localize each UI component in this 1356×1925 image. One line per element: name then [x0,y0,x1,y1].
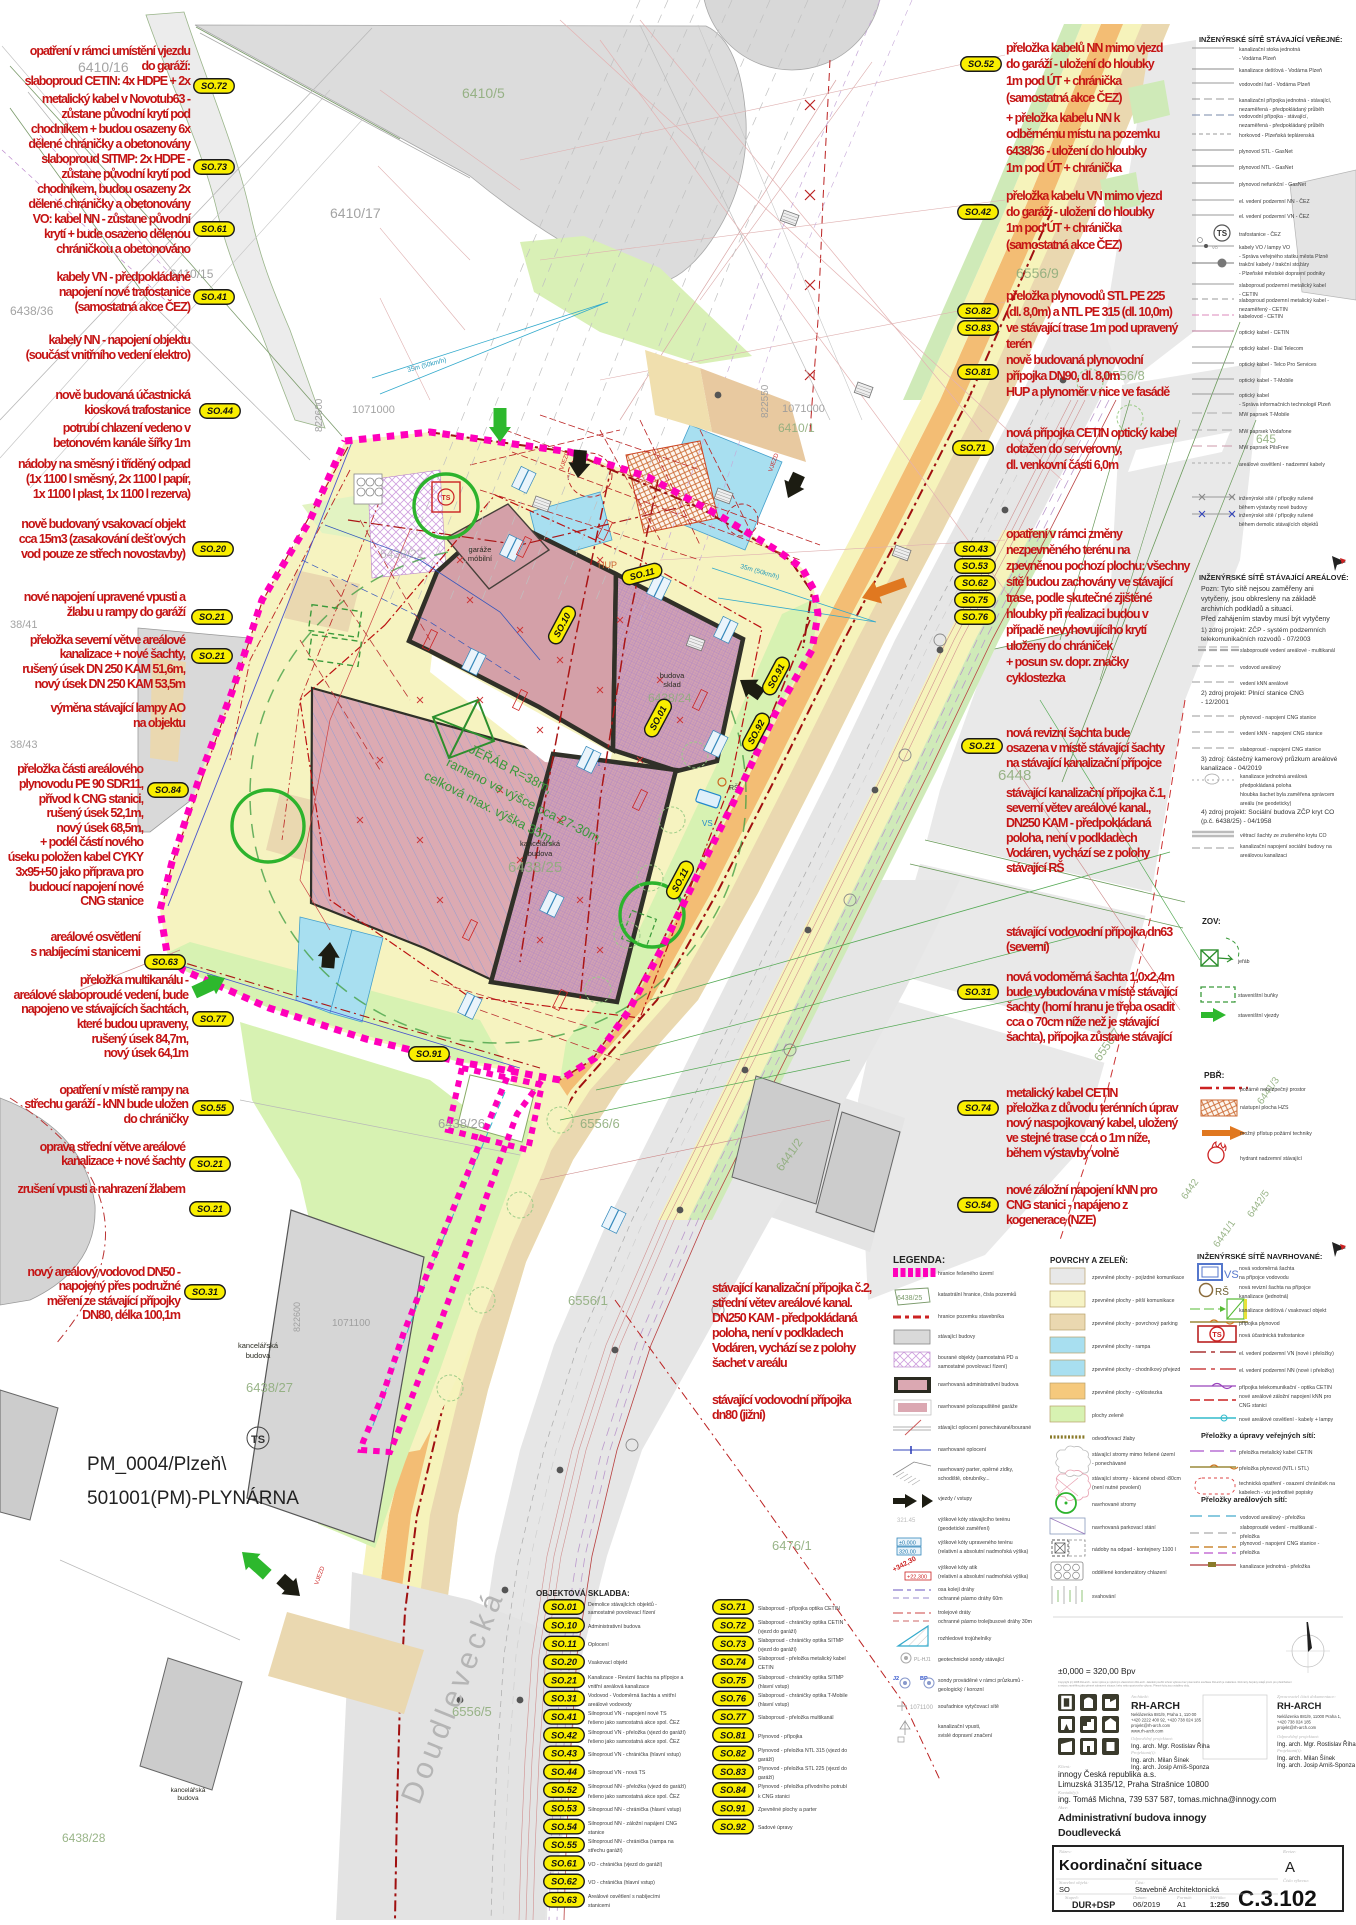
svg-text:na objektu: na objektu [133,716,185,730]
svg-text:stávající budovy: stávající budovy [938,1334,976,1340]
svg-text:ve stávající trase 1m pod upra: ve stávající trase 1m pod upravený [1006,321,1178,335]
svg-text:el. vedení podzemní NN - ČEZ: el. vedení podzemní NN - ČEZ [1239,198,1310,205]
svg-text:kancelářská: kancelářská [238,1341,279,1350]
svg-text:rušený úsek DN 250 KAM 51,6m,: rušený úsek DN 250 KAM 51,6m, [22,662,185,676]
svg-text:Copyright (c) 2008 RH-arch - t: Copyright (c) 2008 RH-arch - tento výkre… [1058,1680,1292,1684]
svg-text:uloženy do chrániček: uloženy do chrániček [1006,639,1113,653]
svg-text:Administrativní budova: Administrativní budova [588,1624,641,1630]
svg-text:Vodáren, vychází se z polohy: Vodáren, vychází se z polohy [712,1341,856,1355]
svg-text:LEGENDA:: LEGENDA: [893,1255,945,1266]
svg-text:odběrnému místu na pozemku: odběrnému místu na pozemku [1006,127,1160,141]
svg-text:MW paprsek Vodafone: MW paprsek Vodafone [1239,429,1292,435]
svg-text:metalický kabel v Novotub63 -: metalický kabel v Novotub63 - [42,92,191,106]
svg-text:1m pod ÚT + chránička: 1m pod ÚT + chránička [1006,73,1123,88]
svg-text:navrhované oplocení: navrhované oplocení [938,1447,987,1453]
svg-text:nový úsek 68,5m,: nový úsek 68,5m, [56,821,143,835]
svg-text:(vjezd do garáží): (vjezd do garáží) [758,1629,797,1635]
svg-text:Doudlevecká: Doudlevecká [1058,1827,1121,1839]
svg-text:technická opatření - osazení c: technická opatření - osazení chrániček n… [1239,1481,1335,1487]
svg-text:SO.74: SO.74 [965,1103,991,1113]
svg-text:Zpevněné plochy a parter: Zpevněné plochy a parter [758,1807,817,1813]
svg-text:budova: budova [177,1795,199,1802]
svg-text:úseku položen kabel CYKY: úseku položen kabel CYKY [8,850,145,864]
svg-text:SO.76: SO.76 [962,612,989,622]
svg-text:Vodovod - Vodoměrná šachta a v: Vodovod - Vodoměrná šachta a vnitřní [588,1693,677,1699]
svg-text:SO.20: SO.20 [551,1657,578,1667]
svg-text:(hlavní vstup): (hlavní vstup) [758,1684,789,1690]
svg-text:projekt@rh-arch.com: projekt@rh-arch.com [1277,1725,1317,1730]
svg-text:SO.31: SO.31 [551,1694,577,1704]
svg-text:střechu garáží - kNN bude ulož: střechu garáží - kNN bude uložen [24,1097,188,1111]
svg-text:řešeno jako samostatná akce sp: řešeno jako samostatná akce spol. ČEZ [588,1719,680,1726]
svg-text:HUP: HUP [598,560,617,570]
svg-text:přeložka plynovodů STL PE 225: přeložka plynovodů STL PE 225 [1006,289,1165,303]
svg-text:- Plzeňské městské dopravní po: - Plzeňské městské dopravní podniky [1239,271,1325,277]
svg-text:(dl. 8,0m) a NTL PE 315 (dl.: (dl. 8,0m) a NTL PE 315 (dl. 10,0m) [1006,305,1173,319]
svg-text:svislé dopravní značení: svislé dopravní značení [938,1733,993,1739]
svg-text:6556/1: 6556/1 [568,1293,608,1308]
svg-text:sítě budou zachovány ve stávaj: sítě budou zachovány ve stávající [1006,575,1174,589]
svg-text:Vodáren, vychází se z polohy: Vodáren, vychází se z polohy [1006,846,1150,860]
svg-text:OBJEKTOVÁ SKLADBA:: OBJEKTOVÁ SKLADBA: [536,1589,630,1598]
svg-text:areálu (ne geodeticky): areálu (ne geodeticky) [1240,801,1292,807]
svg-text:hydrant nadzemní stávající: hydrant nadzemní stávající [1240,1156,1303,1162]
svg-text:SO.54: SO.54 [965,1200,991,1210]
svg-text:Silnoproud VN - napojení nové: Silnoproud VN - napojení nové TS [588,1711,667,1717]
svg-text:katastrální hranice, čísla poz: katastrální hranice, čísla pozemků [938,1291,1017,1298]
svg-text:3x95+50 jako příprava pro: 3x95+50 jako příprava pro [15,865,144,879]
svg-text:SO.74: SO.74 [720,1657,746,1667]
svg-text:+ přeložka kabelu NN k: + přeložka kabelu NN k [1006,111,1121,125]
svg-text:nová vodoměrná šachta: nová vodoměrná šachta [1239,1266,1294,1272]
svg-text:Stavebně Architektonická: Stavebně Architektonická [1135,1885,1220,1894]
svg-text:Silnoproud NN - chránička (hla: Silnoproud NN - chránička (hlavní vstup) [588,1807,681,1813]
svg-text:6438/26: 6438/26 [438,1116,485,1131]
svg-text:stanicemi: stanicemi [588,1903,610,1909]
svg-text:zpevněné plochy - rampa: zpevněné plochy - rampa [1092,1344,1150,1350]
svg-text:+420 738 024 185: +420 738 024 185 [1277,1720,1312,1725]
svg-text:DN250 KAM - předpokládaná: DN250 KAM - předpokládaná [1006,816,1152,830]
svg-text:a nejsou zaměřěny jako přesné: a nejsou zaměřěny jako přesné zobrazení … [1058,1684,1190,1688]
svg-text:kanalizace jednotná areálová: kanalizace jednotná areálová [1240,774,1307,780]
svg-text:822600: 822600 [292,1302,302,1332]
svg-text:bude vybudována v místě stávaj: bude vybudována v místě stávající [1006,985,1179,999]
svg-text:Slaboproud - přeložka metalick: Slaboproud - přeložka metalický kabel [758,1656,846,1662]
svg-text:do garáží:: do garáží: [141,59,190,73]
svg-text:Limuzská 3135/12, Praha Strašn: Limuzská 3135/12, Praha Strašnice 10800 [1058,1780,1209,1789]
svg-text:opatření v rámci změny: opatření v rámci změny [1006,527,1123,541]
svg-text:přípojka DN90, dl. 8,0m: přípojka DN90, dl. 8,0m [1006,369,1120,383]
svg-text:Ing. arch. Milan Šínek: Ing. arch. Milan Šínek [1131,1757,1190,1764]
svg-text:SO.21: SO.21 [197,1204,223,1214]
svg-text:staveništní buňky: staveništní buňky [1238,993,1278,999]
svg-text:6410/1: 6410/1 [778,421,815,435]
svg-text:kanalizace dešťová - Vodárna P: kanalizace dešťová - Vodárna Plzeň [1239,68,1322,74]
svg-text:SO.71: SO.71 [960,443,986,453]
svg-text:navrhovaná parkovací stání: navrhovaná parkovací stání [1092,1525,1156,1531]
svg-text:střední větev areálové kanal.: střední větev areálové kanal. [712,1296,852,1310]
svg-text:přívod k CNG stanici,: přívod k CNG stanici, [39,792,144,806]
svg-text:nová vodoměrná šachta 1,0x2,4m: nová vodoměrná šachta 1,0x2,4m [1006,970,1175,984]
svg-text:Plynovod - přeložka přívodního: Plynovod - přeložka přívodního potrubí [758,1784,848,1790]
svg-text:telekomunikačních rozvodů - 07: telekomunikačních rozvodů - 07/2003 [1201,635,1311,643]
svg-text:slaboproud SITMP: 2x HDPE -: slaboproud SITMP: 2x HDPE - [41,152,191,166]
svg-text:trase, podle skutečné zjištěné: trase, podle skutečné zjištěné [1006,591,1153,605]
svg-text:Plynovod - přípojka: Plynovod - přípojka [758,1734,803,1740]
svg-text:SO.72: SO.72 [720,1621,747,1631]
svg-text:Silnoproud VN - přeložka (vjez: Silnoproud VN - přeložka (vjezd do garáž… [588,1730,686,1736]
svg-text:slaboproudé vedení - multikaná: slaboproudé vedení - multikanál - [1240,1525,1317,1531]
svg-text:sklad: sklad [663,680,681,689]
svg-text:nádoby na směsný i tříděný odp: nádoby na směsný i tříděný odpad [18,457,190,471]
svg-text:možný přístup požární techniky: možný přístup požární techniky [1240,1131,1312,1137]
svg-text:přeložka metalický kabel CETIN: přeložka metalický kabel CETIN [1239,1450,1313,1456]
svg-text:1071100: 1071100 [332,1318,371,1329]
svg-text:dn80 (jižní): dn80 (jižní) [712,1408,766,1422]
svg-text:SO.54: SO.54 [551,1822,577,1832]
svg-text:garáží): garáží) [758,1757,774,1763]
svg-text:DUR+DSP: DUR+DSP [1072,1900,1115,1910]
svg-text:ve stejné trase cca o 1m níže,: ve stejné trase cca o 1m níže, [1006,1131,1150,1145]
svg-text:kabely NN - napojení objektu: kabely NN - napojení objektu [49,333,191,347]
svg-text:garáže: garáže [469,545,492,554]
svg-text:areálové osvětlení - nadzemní: areálové osvětlení - nadzemní kabely [1239,462,1325,468]
svg-text:vodovodní řad - Vodárna Plzeň: vodovodní řad - Vodárna Plzeň [1239,82,1310,88]
svg-text:kanalizace + nové šachty,: kanalizace + nové šachty, [60,647,186,661]
svg-text:optický kabel - CETIN: optický kabel - CETIN [1239,330,1289,336]
svg-text:Přeložky a úpravy veřejných sí: Přeložky a úpravy veřejných sítí: [1201,1431,1316,1440]
svg-text:nový naspojkovaný kabel, ulože: nový naspojkovaný kabel, uložený [1006,1116,1178,1130]
svg-text:kanalizace jednotná - přeložka: kanalizace jednotná - přeložka [1240,1564,1310,1570]
svg-text:zrušení vpusti a nahrazení žla: zrušení vpusti a nahrazení žlabem [18,1182,186,1196]
svg-text:optický kabel - Telco Pro Serv: optický kabel - Telco Pro Services [1239,362,1317,368]
svg-text:chodníkem, budou osazeny 2x: chodníkem, budou osazeny 2x [37,182,191,196]
svg-text:kancelářská: kancelářská [171,1787,206,1794]
svg-text:Ing. arch. Mgr. Rostislav Říha: Ing. arch. Mgr. Rostislav Říha [1131,1742,1210,1750]
svg-text:RŠ: RŠ [1215,1285,1229,1298]
svg-text:sondy prováděné v rámci průzku: sondy prováděné v rámci průzkumů - [938,1677,1024,1684]
svg-text:horkovod - Plzeňská teplárensk: horkovod - Plzeňská teplárenská [1239,133,1314,139]
svg-text:na stávající kanalizační přípo: na stávající kanalizační přípojce [1006,756,1162,770]
svg-text:6476/1: 6476/1 [772,1538,812,1553]
svg-text:6438/27: 6438/27 [246,1380,293,1395]
svg-text:cca o 70cm níže než je stávají: cca o 70cm níže než je stávající [1006,1015,1160,1029]
svg-text:Revize:: Revize: [1282,1849,1297,1854]
svg-text:Název:: Název: [1058,1849,1072,1854]
svg-text:stávající vodovodní přípojka: stávající vodovodní přípojka [712,1393,853,1407]
svg-text:s nabíjecími stanicemi: s nabíjecími stanicemi [30,945,140,959]
svg-text:Slaboproud - chráničky optika: Slaboproud - chráničky optika CETIN [758,1620,844,1626]
svg-text:SO.81: SO.81 [720,1730,746,1740]
svg-text:±0,000: ±0,000 [899,1541,916,1547]
svg-text:A1: A1 [1177,1900,1186,1909]
svg-text:opatření v rámci umístění vjez: opatření v rámci umístění vjezdu [30,44,191,58]
svg-text:MW paprsek PilsFree: MW paprsek PilsFree [1239,445,1289,451]
svg-text:stávající oplocení ponechávané: stávající oplocení ponechávané/bourané [938,1425,1031,1431]
svg-text:SO.84: SO.84 [720,1785,746,1795]
svg-text:el. vedení podzemní VN (nové i: el. vedení podzemní VN (nové i přeložky) [1239,1351,1334,1357]
svg-text:výškové kóty stávajícího terén: výškové kóty stávajícího terénu [938,1517,1010,1523]
svg-text:vod pouze ze střech novostavby: vod pouze ze střech novostavby) [21,547,186,561]
svg-text:VS: VS [1224,1269,1239,1281]
svg-text:geologický / korozní: geologický / korozní [938,1687,984,1693]
svg-text:6438/36 - uložení do hloubky: 6438/36 - uložení do hloubky [1006,144,1147,158]
svg-text:nové záložní napojení kNN pro: nové záložní napojení kNN pro [1006,1183,1158,1197]
svg-text:SO.92: SO.92 [720,1822,747,1832]
svg-text:SO.11: SO.11 [551,1639,576,1649]
svg-text:metalický kabel CETIN: metalický kabel CETIN [1006,1086,1118,1100]
svg-text:poloha, není v podkladech: poloha, není v podkladech [712,1326,843,1340]
svg-text:6410/16: 6410/16 [78,59,129,75]
svg-text:ing. Tomáš Michna, 739 537 587: ing. Tomáš Michna, 739 537 587, tomas.mi… [1058,1795,1277,1804]
svg-text:(samostatná akce ČEZ): (samostatná akce ČEZ) [1006,90,1122,105]
svg-text:plynovod NTL - GasNet: plynovod NTL - GasNet [1239,165,1294,171]
svg-text:1m pod ÚT + chránička: 1m pod ÚT + chránička [1006,220,1123,235]
svg-text:SO.62: SO.62 [551,1877,578,1887]
svg-text:optický kabel - Dial Telecom: optický kabel - Dial Telecom [1239,346,1303,352]
svg-text:vnitřní areálová kanalizace: vnitřní areálová kanalizace [588,1684,650,1690]
svg-text:Silnoproud NN - záložní napáje: Silnoproud NN - záložní napájení CNG [588,1821,677,1827]
svg-text:budoucí napojení nové: budoucí napojení nové [29,880,144,894]
svg-text:+ podél částí nového: + podél částí nového [40,835,144,849]
svg-text:kanalizace - 04/2019: kanalizace - 04/2019 [1201,765,1262,772]
svg-text:zpevněné plochy - povrchový pa: zpevněné plochy - povrchový parking [1092,1321,1178,1327]
svg-text:SO.91: SO.91 [416,1049,442,1059]
svg-text:svahování: svahování [1092,1594,1116,1600]
svg-text:přeložka plynovod (NTL i STL): přeložka plynovod (NTL i STL) [1239,1466,1309,1472]
svg-text:optický kabel - T-Mobile: optický kabel - T-Mobile [1239,378,1294,384]
svg-text:Zpracovatel části dokumentace:: Zpracovatel části dokumentace: [1277,1694,1336,1699]
svg-text:inženýrské sítě / přípojky ruš: inženýrské sítě / přípojky rušené [1239,513,1314,519]
svg-text:nově budovaná účastnická: nově budovaná účastnická [55,388,191,402]
svg-text:inženýrské sítě / přípojky ruš: inženýrské sítě / přípojky rušené [1239,496,1314,502]
svg-text:SO.44: SO.44 [551,1767,577,1777]
svg-text:Slaboproud - přeložka multikan: Slaboproud - přeložka multikanál [758,1715,834,1721]
svg-text:SO.21: SO.21 [199,612,225,622]
svg-text:řešeno jako samostatná akce sp: řešeno jako samostatná akce spol. ČEZ [588,1738,680,1745]
svg-text:6438/36: 6438/36 [10,304,54,318]
svg-text:Sadové úpravy: Sadové úpravy [758,1825,793,1831]
svg-text:1071000: 1071000 [782,403,825,415]
svg-text:(hlavní vstup): (hlavní vstup) [758,1702,789,1708]
svg-text:+ posun sv. dopr. značky: + posun sv. dopr. značky [1006,655,1129,669]
svg-text:Slaboproud - chráničky optika: Slaboproud - chráničky optika T-Mobile [758,1693,848,1699]
svg-text:TS: TS [442,495,451,502]
svg-text:+22,300: +22,300 [907,1575,927,1581]
svg-text:CNG stanici - napájeno z: CNG stanici - napájeno z [1006,1198,1128,1212]
svg-text:navrhované stromy: navrhované stromy [1092,1502,1137,1508]
svg-text:nová přípojka CETIN optický ka: nová přípojka CETIN optický kabel [1006,426,1177,440]
svg-text:SO.43: SO.43 [551,1749,577,1759]
svg-text:1) zdroj projekt: ZČP - systé: 1) zdroj projekt: ZČP - systém podzemníc… [1201,625,1326,634]
svg-text:dotažen do serverovny,: dotažen do serverovny, [1006,442,1122,456]
svg-text:(1x 1100 l směsný, 2x 1100 l p: (1x 1100 l směsný, 2x 1100 l papír, [26,472,191,486]
svg-text:vodovod areálový - přeložka: vodovod areálový - přeložka [1240,1515,1305,1521]
svg-text:822600: 822600 [314,398,325,432]
svg-text:nově budovaný vsakovací objekt: nově budovaný vsakovací objekt [21,517,187,531]
svg-text:přeložka kabelů NN mimo vjezd: přeložka kabelů NN mimo vjezd [1006,41,1163,55]
svg-text:VO - chránička (hlavní vstup): VO - chránička (hlavní vstup) [588,1880,655,1886]
svg-text:SO.84: SO.84 [155,785,181,795]
svg-text:SO.42: SO.42 [551,1730,578,1740]
svg-text:SO.31: SO.31 [192,1287,218,1297]
svg-text:kanalizace + nové šachty: kanalizace + nové šachty [61,1154,186,1168]
svg-text:přeložka: přeložka [1240,1534,1260,1540]
svg-text:ZOV:: ZOV: [1202,917,1221,926]
svg-text:INŽENÝRSKÉ SÍTĚ NAVRHOVANÉ:: INŽENÝRSKÉ SÍTĚ NAVRHOVANÉ: [1197,1252,1322,1261]
svg-text:SO.75: SO.75 [962,595,989,605]
svg-text:předpokládaná poloha: předpokládaná poloha [1240,783,1291,789]
svg-text:areálovou kanalizaci: areálovou kanalizaci [1240,853,1287,859]
svg-text:nový úsek DN 250 KAM 53,5m: nový úsek DN 250 KAM 53,5m [34,677,185,691]
svg-text:stávající stromy - kácené obvo: stávající stromy - kácené obvod ‹80cm [1092,1476,1181,1482]
svg-text:měření ze stávající přípojky: měření ze stávající přípojky [47,1294,181,1308]
svg-text:oddělené kondenzátory chlazení: oddělené kondenzátory chlazení [1092,1570,1167,1576]
svg-text:SO.73: SO.73 [720,1639,746,1649]
svg-text:nezaměřená - předpokládaný prů: nezaměřená - předpokládaný průběh [1239,106,1324,113]
svg-text:přeložka kabelu VN mimo vjezd: přeložka kabelu VN mimo vjezd [1006,189,1162,203]
svg-text:SO.53: SO.53 [551,1804,577,1814]
svg-text:staveništní vjezdy: staveništní vjezdy [1238,1013,1279,1019]
svg-text:stávající kanalizační přípojka: stávající kanalizační přípojka č.2, [712,1281,872,1295]
svg-text:slaboproud - napojení CNG stan: slaboproud - napojení CNG stanice [1240,747,1321,753]
svg-text:Vsakovací objekt: Vsakovací objekt [588,1660,628,1666]
svg-text:přeložka severní větve areálov: přeložka severní větve areálové [30,633,186,647]
svg-text:822550: 822550 [760,384,771,418]
svg-text:SO.73: SO.73 [201,162,227,172]
svg-text:betonovém kanále šířky 1m: betonovém kanále šířky 1m [53,436,191,450]
svg-text:napojený přes podružné: napojený přes podružné [59,1279,181,1293]
svg-text:320,00: 320,00 [899,1550,916,1556]
svg-text:SO.83: SO.83 [965,323,991,333]
svg-text:SO.21: SO.21 [197,1159,223,1169]
svg-text:cca 15m3 (zasakování dešťových: cca 15m3 (zasakování dešťových [19,532,186,546]
svg-text:geotechnické sondy stávající: geotechnické sondy stávající [938,1657,1005,1663]
svg-text:přípojka telekomunikační - opt: přípojka telekomunikační - optika CETIN [1239,1385,1332,1391]
svg-text:TS: TS [1212,1330,1222,1339]
svg-text:SO.52: SO.52 [551,1785,578,1795]
svg-text:móbilní: móbilní [468,554,493,563]
svg-text:větrací šachty ze zrušeného kr: větrací šachty ze zrušeného krytu CO [1240,833,1327,839]
svg-text:TS: TS [251,1434,265,1446]
svg-text:321.45: 321.45 [897,1518,916,1524]
svg-text:6410/5: 6410/5 [462,85,505,101]
svg-text:osa kolejí dráhy: osa kolejí dráhy [938,1587,975,1593]
svg-text:SO.55: SO.55 [551,1840,578,1850]
svg-text:areálové vodovody: areálové vodovody [588,1702,632,1708]
svg-text:plynovod - napojení CNG stanic: plynovod - napojení CNG stanice [1240,715,1316,721]
svg-text:dělené chráničky a obetonovány: dělené chráničky a obetonovány [28,137,191,151]
svg-text:Ing. arch. Josip Arniš-Sponza: Ing. arch. Josip Arniš-Sponza [1277,1763,1356,1769]
svg-text:samostatné povolovací řízení: samostatné povolovací řízení [588,1610,656,1616]
svg-text:SO.01: SO.01 [551,1602,577,1612]
svg-text:během výstavby nové budovy: během výstavby nové budovy [1239,505,1308,511]
svg-text:vodovod areálový: vodovod areálový [1240,665,1281,671]
svg-text:hloubky při realizaci budou v: hloubky při realizaci budou v [1006,607,1149,621]
svg-text:navrhovaný parter, opěrné zídk: navrhovaný parter, opěrné zídky, [938,1467,1013,1473]
svg-text:kanalizační přípojka jednotná: kanalizační přípojka jednotná - stávajíc… [1239,98,1331,104]
svg-text:na přípojce vodovodu: na přípojce vodovodu [1239,1275,1289,1281]
svg-text:PBŘ:: PBŘ: [1204,1069,1224,1080]
svg-text:CNG stanice: CNG stanice [80,894,144,908]
svg-text:chráničkou a obetonováno: chráničkou a obetonováno [56,242,191,256]
svg-text:opatření v místě rampy na: opatření v místě rampy na [59,1083,190,1097]
svg-text:38/43: 38/43 [10,739,38,751]
svg-text:CNG stanici: CNG stanici [1239,1403,1267,1409]
svg-text:šachta), přípojka zůstane stáv: šachta), přípojka zůstane stávající [1006,1030,1173,1044]
svg-text:vjezdy / vstupy: vjezdy / vstupy [938,1496,972,1502]
svg-text:(relativní a absolutní nadmořs: (relativní a absolutní nadmořská výška) [938,1549,1029,1555]
svg-text:RH-ARCH: RH-ARCH [1131,1700,1180,1712]
svg-text:hranice řešeného území: hranice řešeného území [938,1271,994,1277]
svg-text:A: A [1285,1859,1295,1876]
svg-text:ochranné pásmo dráhy 60m: ochranné pásmo dráhy 60m [938,1596,1003,1602]
svg-text:Silnoproud VN - chránička (hla: Silnoproud VN - chránička (hlavní vstup) [588,1752,681,1758]
svg-text:slaboproud podzemní metalický: slaboproud podzemní metalický kabel [1239,283,1326,289]
svg-text:stávající RŠ: stávající RŠ [1006,860,1064,875]
svg-text:SO.21: SO.21 [969,741,995,751]
svg-text:Projektant(i):: Projektant(i): [1276,1748,1303,1753]
svg-text:kanalizační vpusti,: kanalizační vpusti, [938,1724,980,1730]
svg-text:osazena v místě stávající šach: osazena v místě stávající šachty [1006,741,1165,755]
svg-text:6556/6: 6556/6 [580,1116,620,1131]
svg-text:vytyčeny, jsou obkresleny na z: vytyčeny, jsou obkresleny na základě [1201,596,1316,603]
svg-text:napojení nové trafostanice: napojení nové trafostanice [59,285,191,299]
svg-text:2) zdroj projekt: Plnící stan: 2) zdroj projekt: Plnící stanice CNG [1201,690,1304,697]
svg-text:přípojka plynovod: přípojka plynovod [1239,1321,1280,1327]
svg-text:poloha, není v podkladech: poloha, není v podkladech [1006,831,1137,845]
svg-text:optický kabel: optický kabel [1239,393,1269,399]
svg-text:SO.21: SO.21 [551,1675,577,1685]
svg-text:6438/22: 6438/22 [380,547,424,561]
svg-text:zpevněnou pochozí plochu: všec: zpevněnou pochozí plochu: všechny [1006,559,1191,573]
svg-text:- Správa informačních technolo: - Správa informačních technologií Plzeň [1239,402,1331,408]
svg-text:případě nevyhovujícího krytí: případě nevyhovujícího krytí [1006,623,1148,637]
svg-text:SO.62: SO.62 [962,578,989,588]
svg-text:PM_0004/Plzeň\: PM_0004/Plzeň\ [87,1454,227,1475]
svg-text:RH-ARCH: RH-ARCH [1277,1701,1321,1712]
svg-text:INŽENÝRSKÉ SÍTĚ STÁVAJÍCÍ AREÁ: INŽENÝRSKÉ SÍTĚ STÁVAJÍCÍ AREÁLOVÉ: [1199,573,1349,582]
svg-text:napojeno ve stávajících šachtá: napojeno ve stávajících šachtách, [21,1002,188,1016]
svg-text:38/41: 38/41 [10,619,38,631]
svg-text:odvodňovací žlaby: odvodňovací žlaby [1092,1436,1135,1442]
svg-text:nový úsek 64,1m: nový úsek 64,1m [104,1046,189,1060]
svg-text:garáží): garáží) [758,1775,774,1781]
svg-text:k CNG stanici: k CNG stanici [758,1794,790,1800]
svg-text:3) zdroj: částečný kamerový p: 3) zdroj: částečný kamerový průzkum areá… [1201,755,1338,763]
svg-text:SO.82: SO.82 [720,1749,747,1759]
svg-text:během demolic stávajících obje: během demolic stávajících objektů [1239,521,1318,528]
svg-text:PL-HJ1: PL-HJ1 [914,1657,931,1663]
svg-text:(samostatná akce ČEZ): (samostatná akce ČEZ) [75,299,191,314]
svg-text:Neklázenka 881/9, Praha 1, 110: Neklázenka 881/9, Praha 1, 110 00 [1131,1712,1197,1717]
svg-text:trakční kabely / trakční stožá: trakční kabely / trakční stožáry [1239,262,1309,268]
svg-text:schodiště, obrubníky...: schodiště, obrubníky... [938,1476,990,1482]
svg-text:vedení kNN - napojení CNG stan: vedení kNN - napojení CNG stanice [1240,731,1323,737]
svg-text:SO.10: SO.10 [551,1621,578,1631]
svg-text:řešeno jako samostatná akce sp: řešeno jako samostatná akce spol. ČEZ [588,1793,680,1800]
svg-text:cyklostezka: cyklostezka [1006,671,1067,685]
svg-text:šachty (horní hranu je třeba o: šachty (horní hranu je třeba osadit [1006,1000,1176,1014]
svg-text:SO.21: SO.21 [199,651,225,661]
svg-text:souřadnice vytyčovací sítě: souřadnice vytyčovací sítě [938,1704,999,1710]
svg-text:kabely VN - předpokládané: kabely VN - předpokládané [56,270,191,284]
svg-text:SO.76: SO.76 [720,1694,747,1704]
svg-text:SO.41: SO.41 [201,292,227,302]
svg-text:HUP a plynoměr v nice ve fasád: HUP a plynoměr v nice ve fasádě [1006,385,1170,399]
svg-text:4) zdroj projekt: Sociální bu: 4) zdroj projekt: Sociální budova ZČP kr… [1201,807,1334,816]
svg-text:SO.44: SO.44 [207,406,233,416]
